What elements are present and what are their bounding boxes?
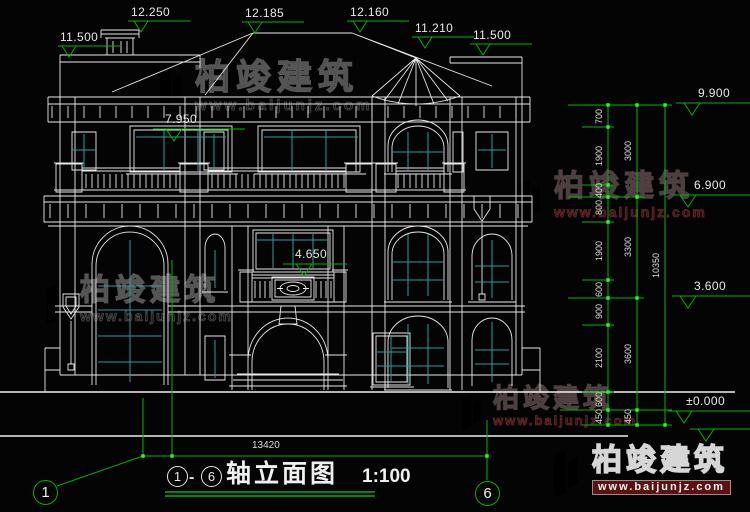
axis-bubble-6: 6 — [475, 481, 500, 506]
dim-450-a: 450 — [595, 409, 604, 424]
elevation-label-4650: 4.650 — [295, 248, 327, 260]
elevation-label-3600: 3.600 — [694, 280, 726, 292]
dim-10350: 10350 — [652, 253, 661, 278]
elevation-label-6900: 6.900 — [694, 179, 726, 191]
title-axis-end-circle: 6 — [201, 466, 222, 487]
elevation-linework — [0, 0, 750, 512]
elevation-label-11210: 11.210 — [415, 22, 453, 34]
dim-13420: 13420 — [252, 440, 280, 451]
elevation-label-12250: 12.250 — [131, 6, 170, 18]
axis-bubble-1: 1 — [33, 480, 58, 505]
dim-1900-a: 1900 — [595, 146, 604, 166]
dim-400: 400 — [595, 183, 604, 198]
dim-1900-b: 1900 — [595, 241, 604, 261]
dim-3600: 3600 — [624, 344, 633, 364]
dim-600-a: 600 — [595, 282, 604, 297]
dim-800: 800 — [595, 200, 604, 215]
dim-600-b: 600 — [595, 392, 604, 407]
title-axis-start-circle: 1 — [167, 466, 188, 487]
dim-700: 700 — [595, 109, 604, 124]
dim-3300: 3300 — [624, 237, 633, 257]
cad-elevation-canvas: 柏竣建筑 www.baijunjz.com 柏竣建筑 www.baijunjz.… — [0, 0, 750, 512]
dim-900: 900 — [595, 304, 604, 319]
title-dash: - — [189, 470, 194, 486]
elevation-label-9900: 9.900 — [698, 87, 730, 99]
dim-2100: 2100 — [595, 348, 604, 368]
elevation-label-7950: 7.950 — [165, 113, 197, 125]
elevation-label-12160: 12.160 — [350, 6, 389, 18]
elevation-label-11500-left: 11.500 — [60, 31, 98, 43]
elevation-label-11500-right: 11.500 — [473, 29, 511, 41]
drawing-scale: 1:100 — [362, 467, 411, 486]
dim-450-b: 450 — [624, 409, 633, 424]
elevation-label-0000: ±0.000 — [686, 395, 725, 407]
drawing-title: 轴立面图 — [226, 462, 338, 487]
dim-3000: 3000 — [624, 141, 633, 161]
elevation-label-12185: 12.185 — [245, 7, 284, 19]
